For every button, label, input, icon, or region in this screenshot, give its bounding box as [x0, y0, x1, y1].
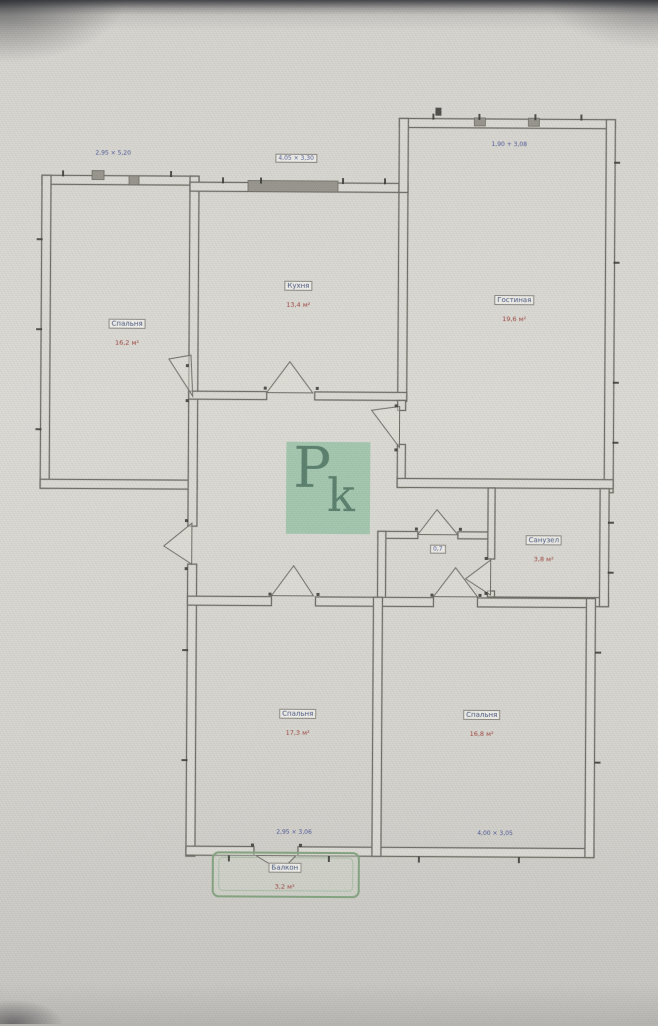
watermark-letter-p: P — [293, 436, 331, 501]
room-name: Спальня — [109, 319, 146, 329]
door-swing — [164, 523, 192, 564]
room-label-balcony: Балкон 3,2 м² — [268, 855, 301, 893]
room-label-bottom-right: Спальня 16,8 м² — [463, 702, 500, 740]
door-swings — [162, 355, 492, 872]
room-name: Санузел — [526, 535, 562, 545]
room-name: Спальня — [279, 709, 316, 719]
dimension-label: 4,00 × 3,05 — [477, 830, 513, 837]
door-swing — [271, 566, 313, 596]
watermark-letter-k: k — [327, 468, 355, 522]
room-area: 17,3 м² — [286, 729, 310, 737]
door-swing — [267, 362, 313, 393]
agency-watermark: P k — [286, 442, 371, 535]
room-label-top-right: Гостиная 19,6 м² — [494, 287, 534, 325]
room-area: 16,8 м² — [470, 730, 494, 738]
room-label-top-left: Спальня 16,2 м² — [108, 311, 145, 349]
room-name: Балкон — [268, 863, 301, 873]
room-area: 19,6 м² — [502, 315, 526, 323]
dimension-label: 0,7 — [430, 545, 446, 554]
dimension-label: 1,90 + 3,08 — [491, 141, 527, 148]
room-label-bottom-left: Спальня 17,3 м² — [279, 701, 316, 739]
room-area: 13,4 м² — [286, 301, 310, 309]
room-name: Гостиная — [494, 295, 534, 305]
room-label-top-middle: Кухня 13,4 м² — [284, 273, 312, 311]
dimension-label: 2,95 × 3,06 — [276, 829, 312, 836]
room-name: Спальня — [463, 710, 500, 720]
room-area: 3,2 м² — [275, 883, 295, 891]
dimension-label: 2,95 × 5,20 — [95, 150, 131, 157]
room-label-bathroom: Санузел 3,8 м² — [525, 527, 562, 565]
dimension-label: 4,05 × 3,30 — [275, 154, 317, 163]
room-area: 16,2 м² — [115, 339, 139, 347]
room-name: Кухня — [284, 281, 312, 291]
floor-plan: Спальня 16,2 м² Кухня 13,4 м² Гостиная 1… — [0, 0, 658, 1026]
door-swing — [418, 510, 458, 535]
door-swing — [371, 406, 399, 447]
room-area: 3,8 м² — [534, 555, 554, 563]
door-swing — [169, 355, 193, 396]
